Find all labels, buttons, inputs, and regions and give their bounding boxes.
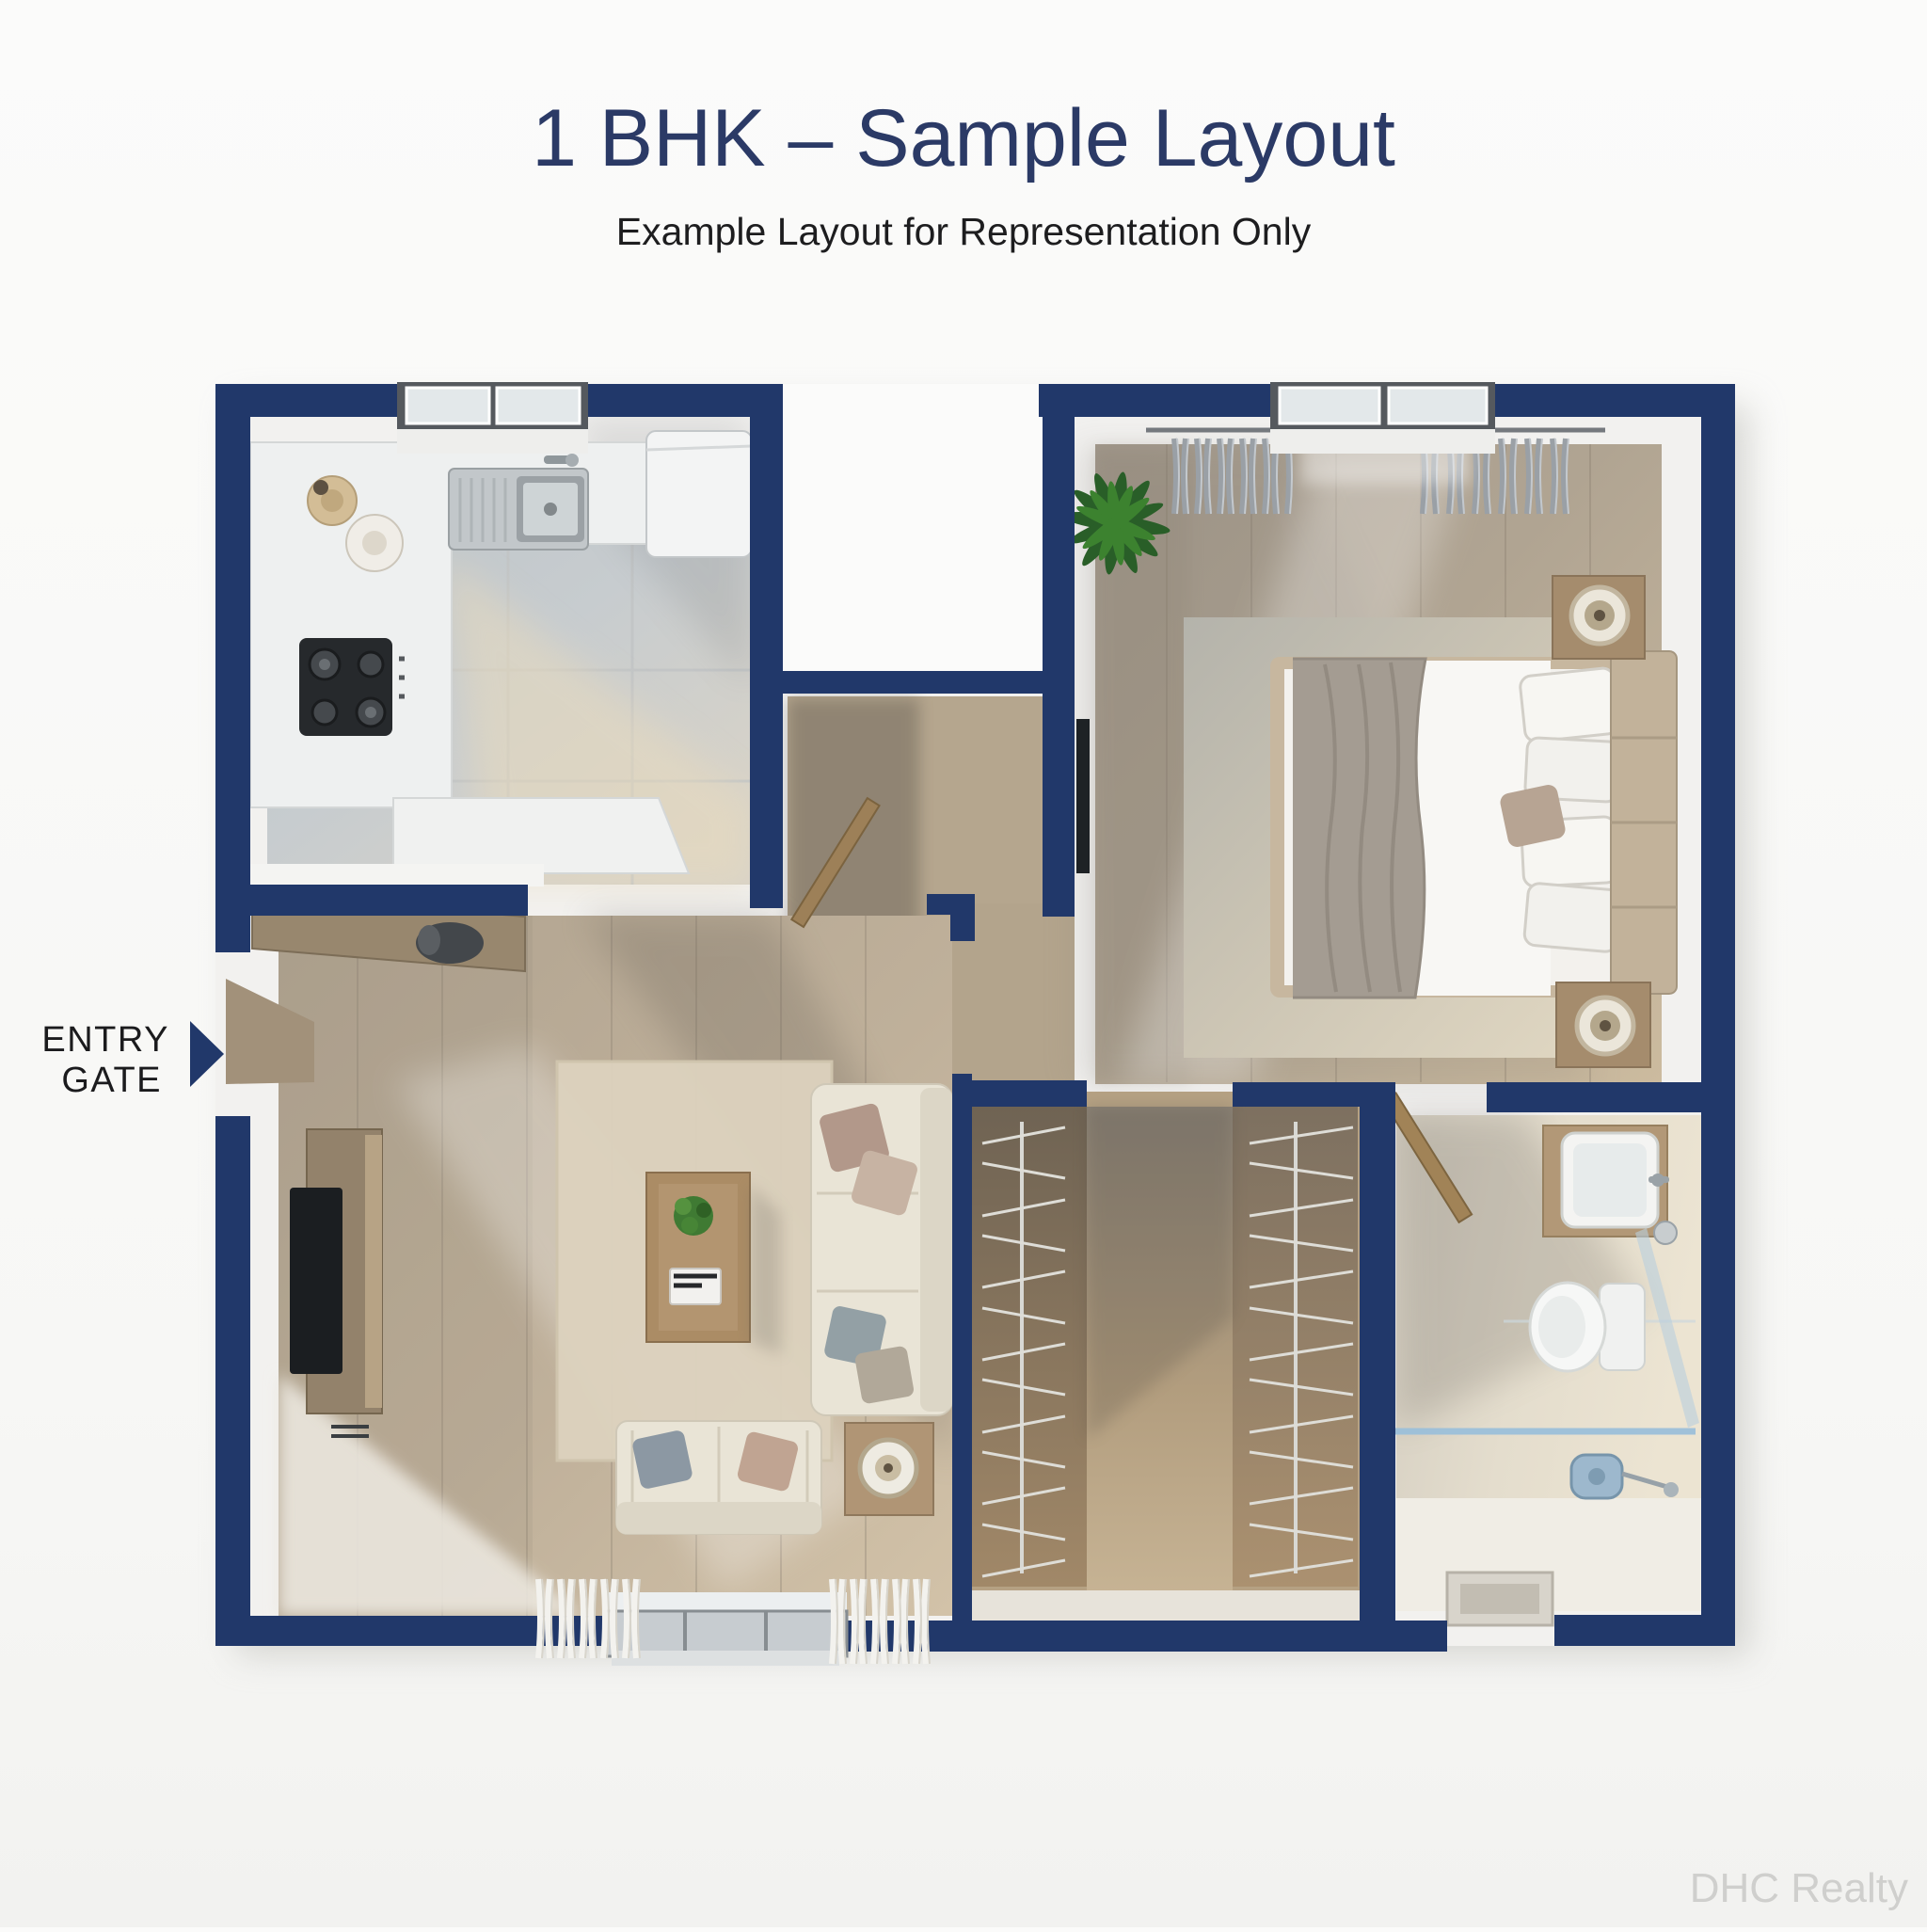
svg-text:ENTRY: ENTRY: [41, 1020, 169, 1060]
svg-text:DHC Realty: DHC Realty: [1690, 1865, 1908, 1911]
svg-text:Example Layout for Representat: Example Layout for Representation Only: [616, 210, 1312, 253]
svg-text:1 BHK – Sample Layout: 1 BHK – Sample Layout: [532, 93, 1395, 184]
svg-text:GATE: GATE: [61, 1061, 162, 1100]
